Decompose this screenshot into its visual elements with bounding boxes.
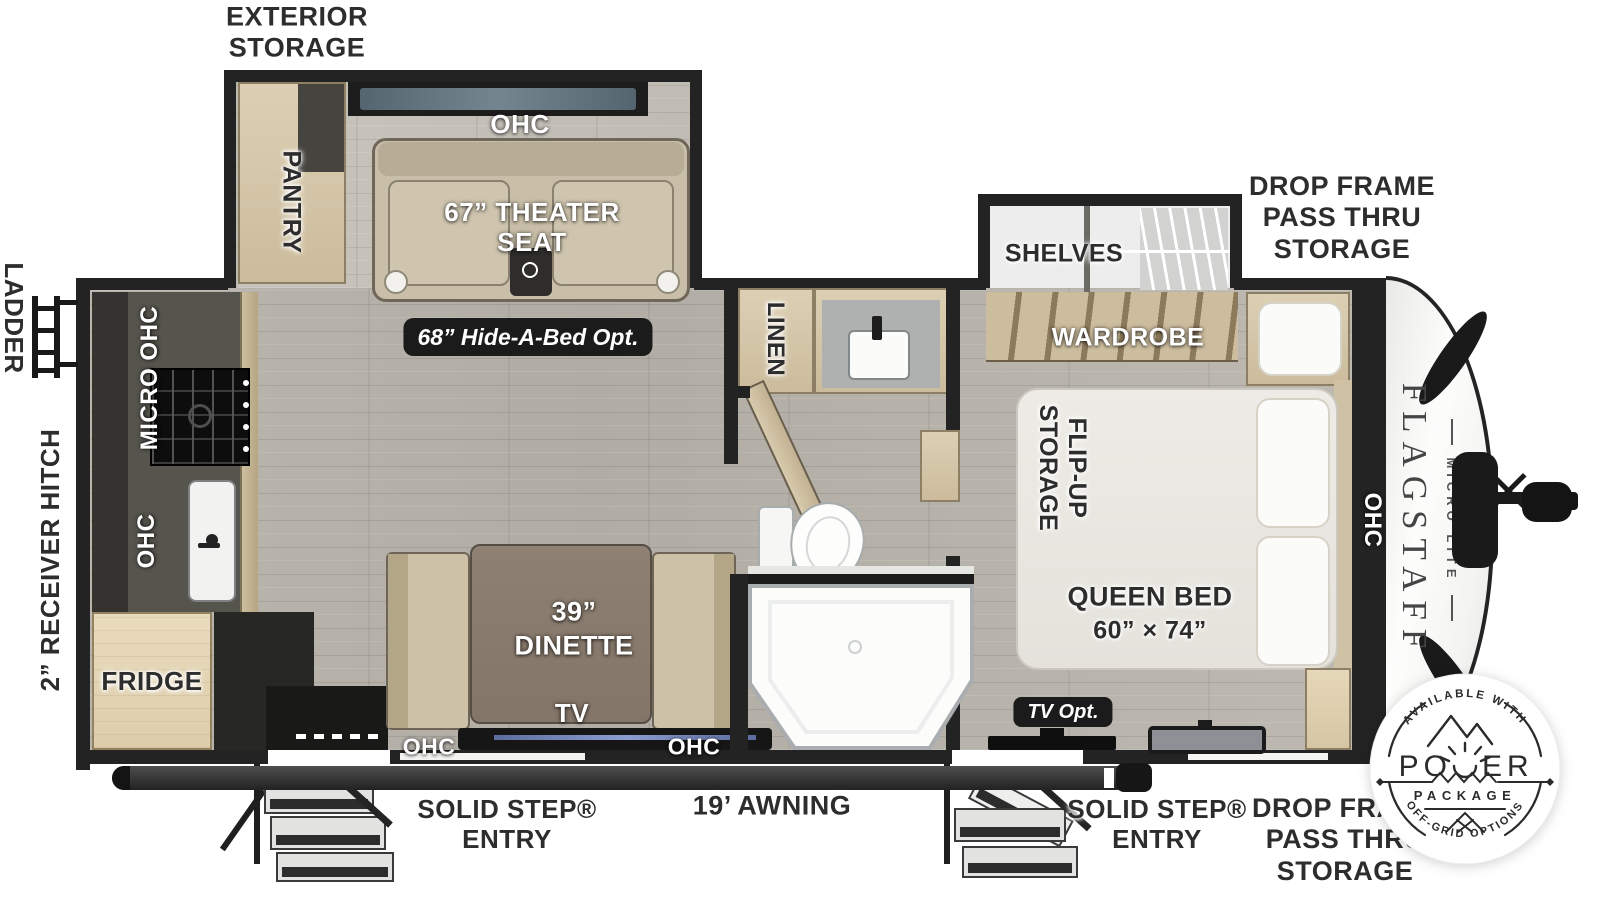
stove-knob (243, 424, 249, 430)
bath-faucet-icon (872, 316, 882, 340)
wall-bottom-left (76, 750, 268, 764)
awning-label: 19’ AWNING (693, 790, 852, 821)
stove-knob (243, 402, 249, 408)
pantry-label: PANTRY (277, 151, 306, 254)
ohc-dinette-right-label: OHC (668, 734, 721, 761)
hitch-coupler (1522, 482, 1572, 522)
tv-label: TV (555, 698, 589, 728)
queen-bed-size-label: 60” × 74” (1093, 617, 1207, 646)
theater-console-icon (522, 262, 538, 278)
theater-seat-label: 67” THEATER SEAT (444, 197, 620, 257)
wall-top-right (1234, 278, 1394, 290)
slide-window-glass (360, 88, 636, 110)
drop-frame-top-label: DROP FRAME PASS THRU STORAGE (1249, 171, 1435, 265)
ladder-icon (32, 328, 60, 333)
step-tread (962, 846, 1078, 878)
bedroom-tv (988, 736, 1116, 750)
step-tread (954, 808, 1066, 842)
power-package-badge: AVAILABLE WITH PO ER PACKAGE OFF-GRID (1368, 672, 1562, 866)
entry-door-dash (296, 734, 306, 739)
shower-pan-inner (772, 604, 950, 730)
ladder-label: LADDER (0, 262, 29, 373)
stove-knob (243, 446, 249, 452)
receiver-hitch-label: 2” RECEIVER HITCH (35, 429, 65, 692)
ladder-icon (32, 368, 60, 373)
wall-rear (76, 278, 90, 770)
awning-bar (112, 766, 1152, 790)
hitch-pin (1566, 492, 1578, 510)
wall-top-left (76, 278, 228, 290)
floorplan: FLAGSTAFF MICRO LITE PANTRY OHC 67” THEA… (0, 0, 1600, 897)
ladder-mount (60, 300, 78, 305)
entry-door-dash (368, 734, 378, 739)
ohc-kitchen-label: OHC (133, 514, 161, 569)
entry-door-dash (350, 734, 360, 739)
bedroom-bench (1305, 668, 1351, 750)
package-text: PACKAGE (1414, 788, 1517, 803)
faucet-icon (198, 543, 220, 548)
pillow (1256, 536, 1330, 666)
exterior-storage-label: EXTERIOR STORAGE (226, 2, 368, 65)
ohc-slide-label: OHC (490, 109, 549, 139)
bedroom-corner-cushion (1258, 302, 1342, 376)
wardrobe-label: WARDROBE (1052, 324, 1205, 353)
stove-knob (243, 380, 249, 386)
step-tread (276, 852, 394, 882)
ohc-dinette-left-label: OHC (403, 734, 456, 761)
ladder-icon (32, 350, 60, 355)
entry-door-dash (332, 734, 342, 739)
cupholder-icon (656, 270, 680, 294)
stove-burner (188, 404, 212, 428)
micro-ohc-label: MICRO OHC (136, 306, 164, 451)
shower-track (748, 574, 974, 584)
awning-stripe (1104, 768, 1114, 788)
pillow (1256, 398, 1330, 528)
linen-label: LINEN (761, 302, 789, 377)
entry-left-label: SOLID STEP® ENTRY (417, 794, 596, 854)
fridge-label: FRIDGE (101, 666, 202, 696)
dinette-label: DINETTE (514, 630, 633, 661)
dinette-bench-left-back (388, 554, 408, 728)
bath-wall-left-lower (730, 574, 748, 750)
power-right-text: ER (1482, 750, 1534, 783)
fireplace-screen (1152, 730, 1262, 750)
hide-a-bed-badge: 68” Hide-A-Bed Opt. (403, 318, 652, 356)
tongue-jack-housing (1452, 452, 1498, 568)
shower-drain (848, 640, 862, 654)
window-bedroom (1188, 753, 1328, 760)
series-dash (1451, 419, 1453, 445)
queen-bed-label: QUEEN BED (1067, 581, 1232, 612)
cupholder-icon (384, 270, 408, 294)
theater-seat-back (378, 142, 684, 176)
ohc-bed-label: OHC (1358, 493, 1386, 548)
awning-cap-left (112, 766, 130, 790)
entry-door-dash (314, 734, 324, 739)
dinette-size-label: 39” (551, 596, 596, 627)
flip-up-storage-label: FLIP-UP STORAGE (1033, 405, 1091, 532)
ladder-icon (32, 306, 60, 311)
entry-door-mat (266, 686, 388, 750)
entry-right-label: SOLID STEP® ENTRY (1067, 794, 1246, 854)
series-dash (1451, 595, 1453, 621)
ladder-mount (60, 362, 78, 367)
tv-opt-badge: TV Opt. (1013, 697, 1112, 727)
shelves-label: SHELVES (1005, 240, 1123, 269)
hanging-rods (1140, 208, 1228, 290)
bath-wall-left-upper (724, 288, 738, 464)
bath-door-hinge (738, 386, 750, 398)
step-tread (270, 816, 386, 850)
brand-logo: FLAGSTAFF (1392, 350, 1436, 690)
awning-cap-right (1116, 763, 1152, 792)
shower-track (748, 566, 974, 574)
bath-side-cabinet (920, 430, 960, 502)
fireplace-latch (1198, 720, 1212, 728)
